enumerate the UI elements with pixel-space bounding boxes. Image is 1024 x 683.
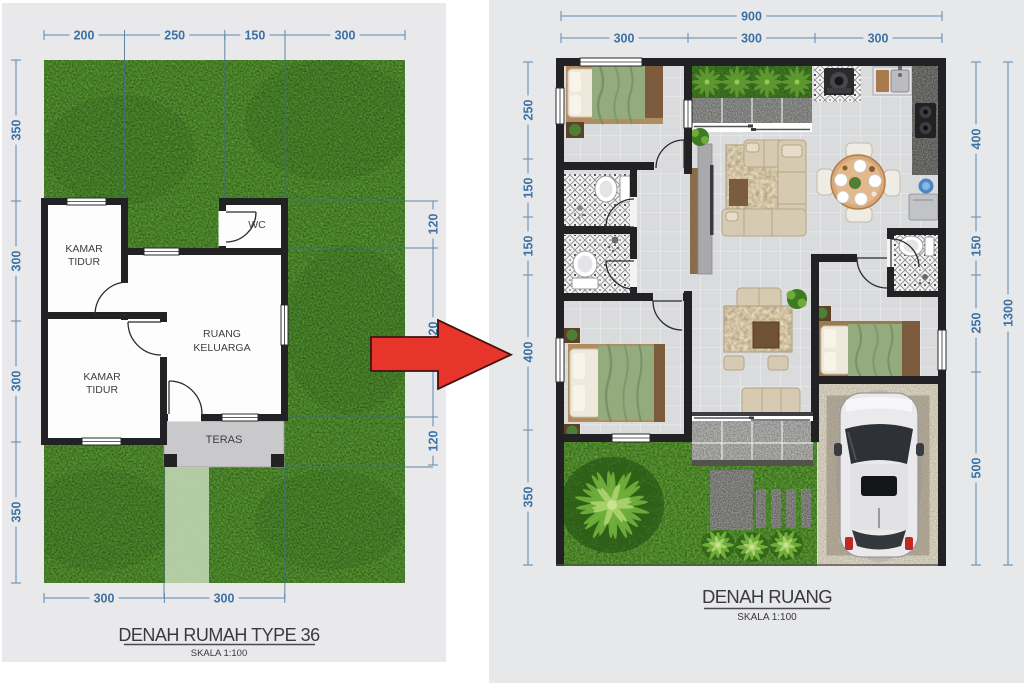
svg-text:200: 200	[74, 29, 95, 43]
svg-text:350: 350	[10, 120, 24, 141]
svg-text:TIDUR: TIDUR	[86, 384, 118, 396]
svg-text:TIDUR: TIDUR	[68, 256, 100, 268]
svg-text:KAMAR: KAMAR	[83, 371, 121, 383]
svg-text:300: 300	[214, 592, 235, 606]
svg-text:350: 350	[522, 487, 536, 508]
svg-text:150: 150	[522, 178, 536, 199]
svg-text:300: 300	[614, 32, 635, 46]
svg-text:1300: 1300	[1002, 299, 1016, 327]
svg-text:DENAH RUANG: DENAH RUANG	[702, 586, 832, 607]
svg-text:KAMAR: KAMAR	[65, 243, 103, 255]
svg-text:SKALA 1:100: SKALA 1:100	[737, 612, 797, 623]
svg-text:SKALA 1:100: SKALA 1:100	[191, 648, 248, 659]
svg-text:120: 120	[427, 431, 441, 452]
svg-text:150: 150	[244, 29, 265, 43]
svg-text:250: 250	[970, 313, 984, 334]
svg-text:350: 350	[10, 502, 24, 523]
svg-text:150: 150	[970, 236, 984, 257]
svg-text:300: 300	[335, 29, 356, 43]
svg-text:300: 300	[868, 32, 889, 46]
svg-text:250: 250	[522, 100, 536, 121]
svg-text:120: 120	[427, 214, 441, 235]
svg-text:400: 400	[522, 342, 536, 363]
svg-text:150: 150	[522, 236, 536, 257]
svg-text:300: 300	[10, 251, 24, 272]
svg-text:RUANG: RUANG	[203, 328, 241, 340]
svg-text:250: 250	[164, 29, 185, 43]
svg-text:300: 300	[741, 32, 762, 46]
svg-text:400: 400	[970, 129, 984, 150]
svg-text:DENAH RUMAH TYPE 36: DENAH RUMAH TYPE 36	[118, 625, 320, 645]
svg-text:300: 300	[10, 371, 24, 392]
svg-text:TERAS: TERAS	[206, 434, 243, 446]
svg-text:WC: WC	[248, 219, 266, 231]
svg-text:300: 300	[94, 592, 115, 606]
svg-text:KELUARGA: KELUARGA	[193, 342, 250, 354]
svg-text:900: 900	[741, 10, 762, 24]
svg-text:500: 500	[970, 458, 984, 479]
